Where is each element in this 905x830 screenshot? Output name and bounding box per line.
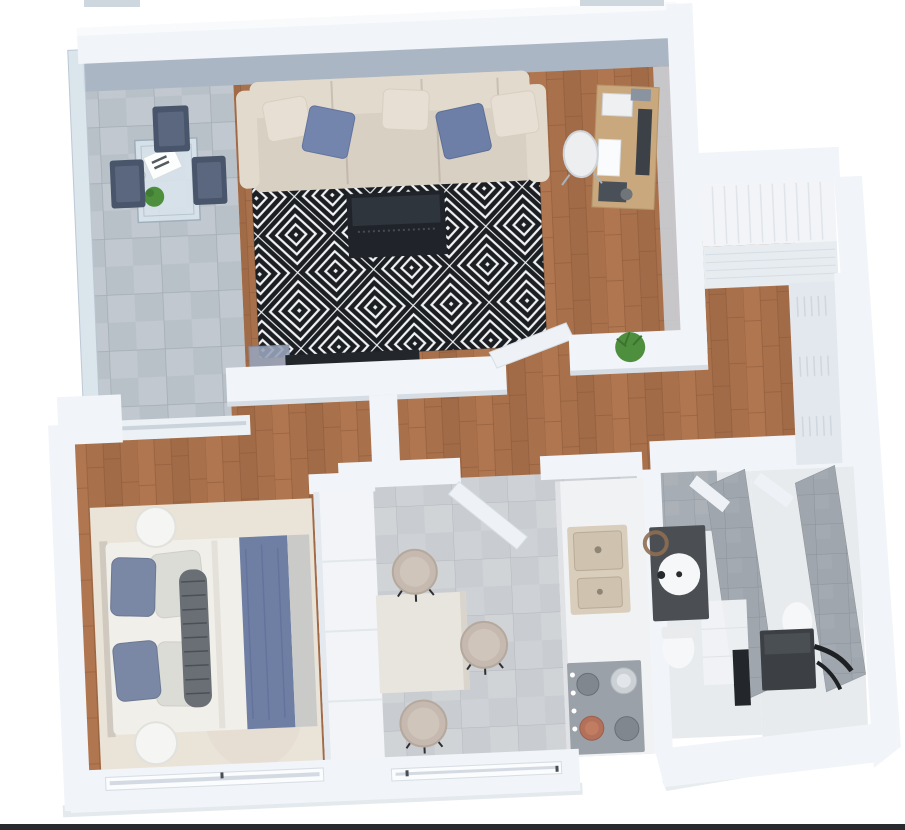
bedroom-stool-1 (135, 506, 177, 548)
sofa (235, 70, 550, 195)
balcony-chair-left (110, 159, 146, 208)
wall-cut-cap-right (580, 0, 664, 6)
desk-book (631, 88, 652, 101)
dining-table (376, 592, 470, 694)
sofa-pillow-blue-2 (435, 103, 492, 160)
window-latch-3 (555, 766, 558, 772)
window-latch-1 (220, 772, 223, 778)
nook-top-wall (687, 147, 840, 186)
balcony-chair-top (152, 105, 190, 153)
floorplan-stage (0, 0, 905, 830)
blue-sideboard (249, 345, 290, 369)
sofa-pillow-blue-1 (301, 105, 355, 159)
vanity-unit (644, 525, 709, 622)
burner-1 (576, 673, 599, 696)
chair-seat (197, 162, 223, 199)
kitchen-wall-east (540, 452, 643, 480)
chair-seat (115, 165, 141, 202)
floorplan-svg (0, 0, 905, 830)
desk-monitor (635, 109, 652, 176)
media-console (346, 190, 447, 258)
console-top (351, 194, 440, 226)
bed-runner-blue (239, 535, 295, 729)
wall-cut-cap-left (84, 0, 140, 7)
bed (99, 532, 317, 737)
bed-pillow-blue-2 (112, 640, 161, 702)
desk-papers (597, 139, 621, 176)
cooktop (567, 660, 645, 755)
bedroom-stool-2 (134, 721, 178, 765)
closet-face (703, 241, 839, 289)
chair-seat (158, 111, 185, 146)
desk (592, 85, 659, 210)
toilet-1-tank (661, 626, 695, 639)
utility-dark-slot (733, 649, 751, 706)
kitchen-sink (567, 524, 631, 615)
sofa-pillow-beige-3 (490, 90, 540, 138)
desk-laptop (602, 93, 633, 116)
balcony-chair-right (192, 156, 228, 205)
bed-pillow-blue-1 (110, 558, 156, 617)
image-bottom-border (0, 824, 905, 830)
closet-top (700, 179, 837, 247)
utility-top (764, 633, 811, 655)
burner-2 (614, 716, 639, 741)
sofa-pillow-beige-2 (382, 89, 430, 131)
window-latch-2 (405, 770, 408, 776)
sofa-armrest-left (236, 90, 260, 189)
desk-chair-seat (563, 130, 599, 177)
